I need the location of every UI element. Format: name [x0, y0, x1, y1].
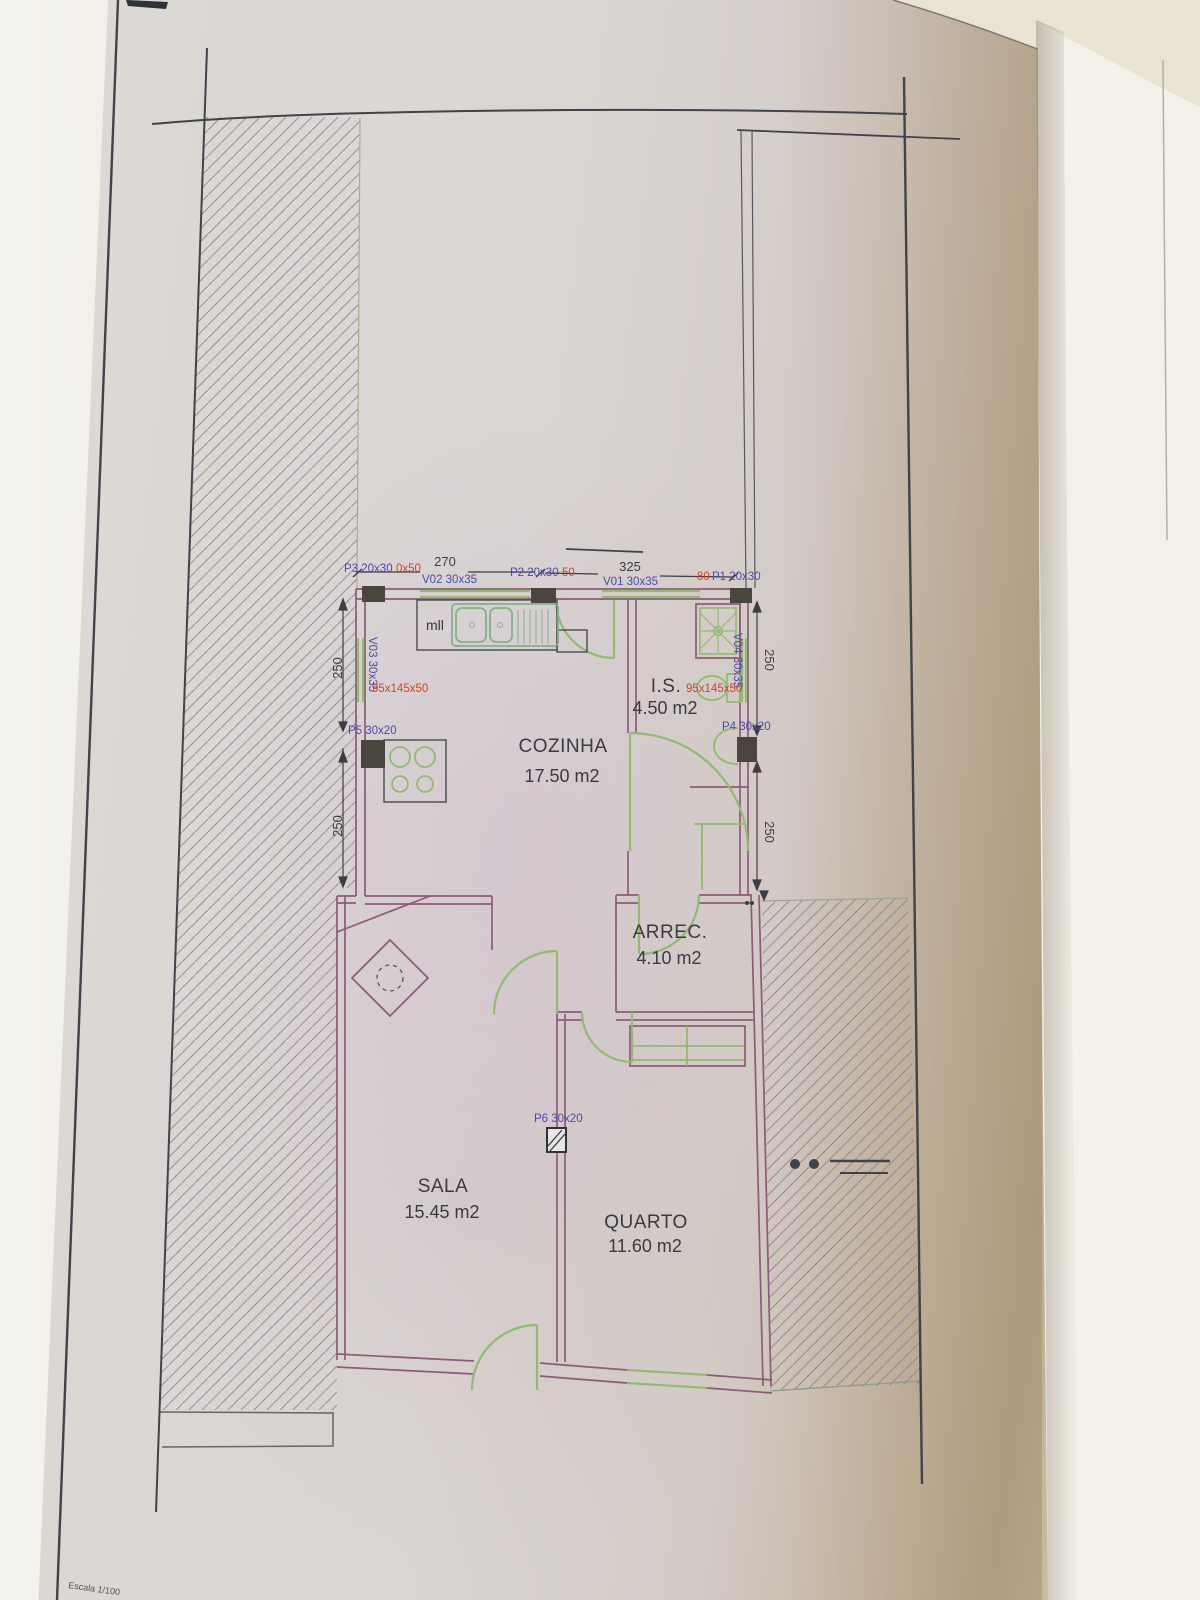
door-p2: [556, 600, 614, 658]
room-name-sala: SALA: [418, 1176, 469, 1197]
dim-270: 270: [434, 554, 456, 569]
window-label-v02: V02 30x35: [422, 574, 477, 586]
kitchen-unit-note: 95x145x50: [372, 683, 428, 695]
door-entrance: [472, 1325, 537, 1390]
window-label-v01: V01 30x35: [603, 576, 658, 588]
sidewalk-band: [159, 1412, 333, 1447]
closet-shelves: [694, 824, 746, 890]
dim-325: 325: [619, 559, 641, 574]
dim-left-upper: 250: [330, 657, 345, 679]
room-area-is: 4.50 m2: [632, 698, 697, 718]
sala-chamfer-wall: [337, 896, 430, 932]
door-note-p1: 80: [697, 571, 710, 583]
kitchen-sink: [452, 604, 558, 646]
dim-right-lower: 250: [762, 821, 777, 843]
floor-plan-photo: P3 20x30 0x50 P2 20x30 50 80 P1 20x30 P4…: [0, 0, 1200, 1600]
door-label-p5: P5 30x20: [348, 725, 397, 737]
walls: [337, 589, 772, 1393]
door-label-p4: P4 30x20: [722, 721, 771, 733]
pillar-p2: [531, 588, 556, 603]
fireplace: [352, 940, 428, 1016]
bedroom-window: [627, 1370, 707, 1375]
room-area-arrec: 4.10 m2: [636, 948, 701, 968]
room-name-is: I.S.: [651, 676, 682, 697]
pillar-p1: [730, 588, 752, 603]
door-label-p1: P1 20x30: [712, 571, 761, 583]
top-edge-mark: [126, 0, 168, 9]
room-area-quarto: 11.60 m2: [608, 1236, 682, 1256]
room-name-quarto: QUARTO: [604, 1212, 688, 1233]
pillar-p6: [547, 1128, 566, 1152]
dim-right-upper: 250: [762, 649, 777, 671]
room-name-cozinha: COZINHA: [519, 736, 608, 757]
fireplace-flue: [377, 965, 403, 991]
left-hatch-strip: [159, 117, 360, 1410]
bath-unit-note: 95x145x50: [686, 683, 742, 695]
door-label-p3: P3 20x30: [344, 563, 393, 575]
pillar-p4: [737, 737, 757, 762]
pillar-p3: [362, 586, 385, 602]
scale-label: Escala 1/100: [68, 1580, 121, 1597]
sheet-frame-line: [57, 0, 118, 1600]
wardrobe-shelves: [632, 1026, 744, 1066]
pillars: [361, 586, 757, 1152]
room-area-cozinha: 17.50 m2: [524, 766, 599, 786]
dim-left-lower: 250: [330, 815, 345, 837]
door-is: [630, 733, 748, 851]
door-sala-hall: [494, 951, 557, 1014]
door-label-p6: P6 30x20: [534, 1113, 583, 1125]
room-name-arrec: ARREC.: [633, 922, 708, 943]
door-note-p3: 0x50: [396, 563, 421, 575]
mll-note: mll: [426, 617, 444, 633]
stove: [384, 740, 446, 802]
window-label-v04: V04 30x35: [731, 633, 743, 688]
door-note-p2: 50: [562, 567, 575, 579]
wash-basin: [714, 728, 738, 764]
room-area-sala: 15.45 m2: [404, 1202, 479, 1222]
door-label-p2: P2 20x30: [510, 567, 559, 579]
right-hatch-strip: [762, 898, 920, 1390]
pillar-p5: [361, 740, 385, 768]
